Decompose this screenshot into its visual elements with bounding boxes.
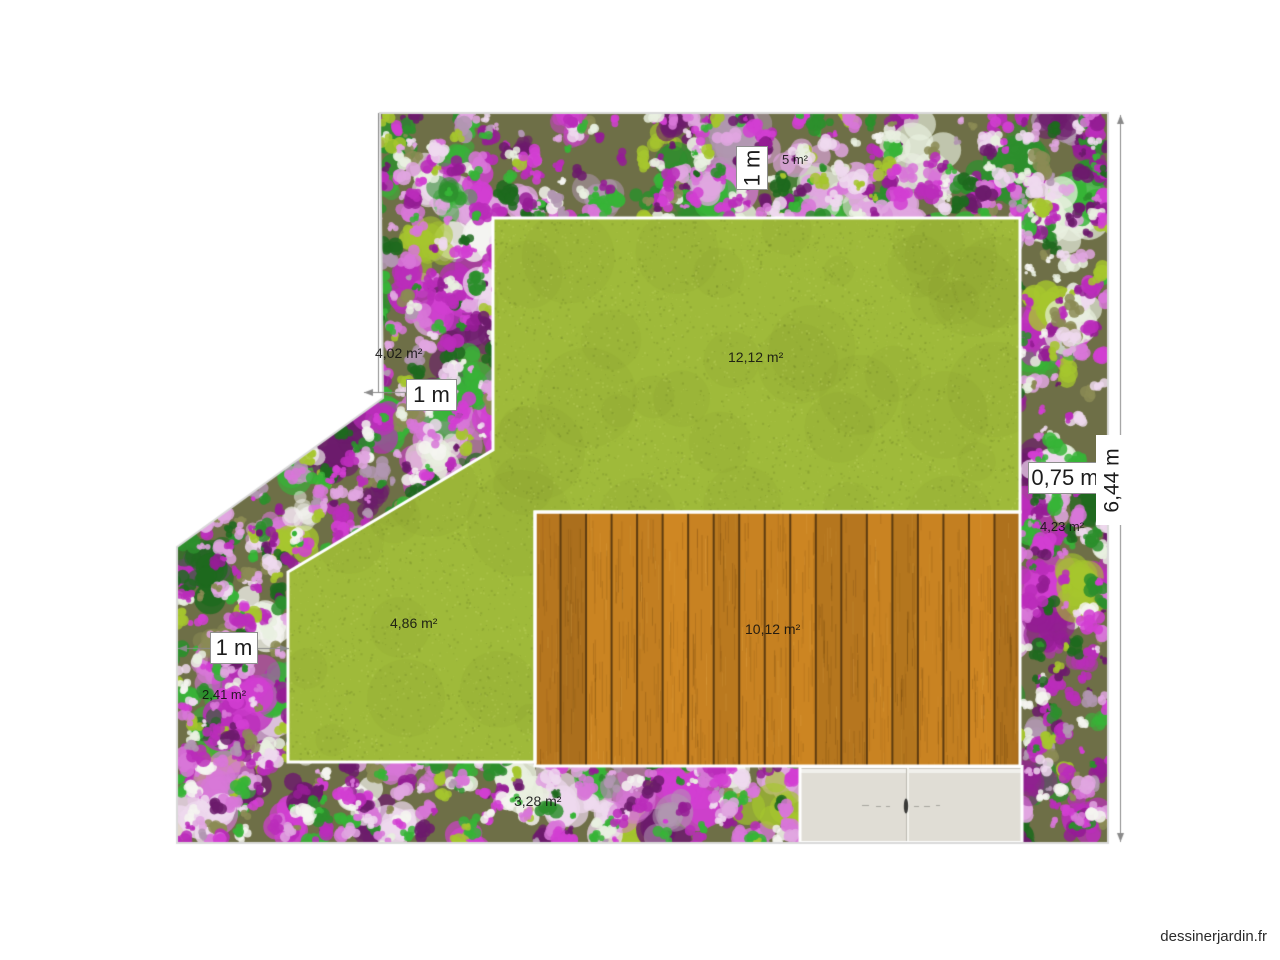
dimension-right-bed-width[interactable]: 0,75 m [1028, 462, 1102, 494]
site-watermark: dessinerjardin.fr [1160, 928, 1267, 945]
area-label-bottom-bed: 3,28 m² [514, 793, 561, 809]
dimension-left-bed-width[interactable]: 1 m [210, 632, 258, 664]
dimension-upper-left-bed-width[interactable]: 1 m [406, 379, 457, 411]
dimension-left-bed-width-label: 1 m [216, 637, 253, 659]
area-label-deck: 10,12 m² [745, 621, 800, 637]
area-label-left-bed: 2,41 m² [202, 687, 246, 702]
dimension-garden-depth-label: 6,44 m [1102, 448, 1123, 512]
area-label-right-bed: 4,23 m² [1040, 519, 1084, 534]
area-label-upper-left-bed: 4,02 m² [375, 345, 422, 361]
dimension-top-bed-height-label: 1 m [741, 150, 763, 187]
garden-plan: 1 m 1 m 0,75 m 6,44 m 1 m 5 m² 4,02 m² 1… [0, 0, 1280, 960]
dimension-garden-depth[interactable]: 6,44 m [1096, 435, 1128, 525]
area-label-top-bed: 5 m² [782, 152, 808, 167]
area-label-small-lawn: 4,86 m² [390, 615, 437, 631]
dimension-right-bed-width-label: 0,75 m [1031, 467, 1098, 489]
dimension-top-bed-height[interactable]: 1 m [736, 146, 768, 190]
area-label-main-lawn: 12,12 m² [728, 349, 783, 365]
dimension-upper-left-bed-width-label: 1 m [413, 384, 450, 406]
